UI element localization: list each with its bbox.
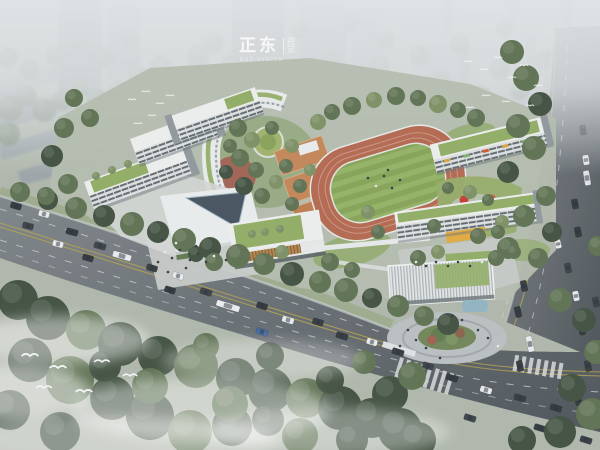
atmosphere-veil (0, 0, 600, 450)
scene-canvas (0, 0, 600, 450)
aerial-render-school-campus: 正东 视觉 EST VISION (0, 0, 600, 450)
